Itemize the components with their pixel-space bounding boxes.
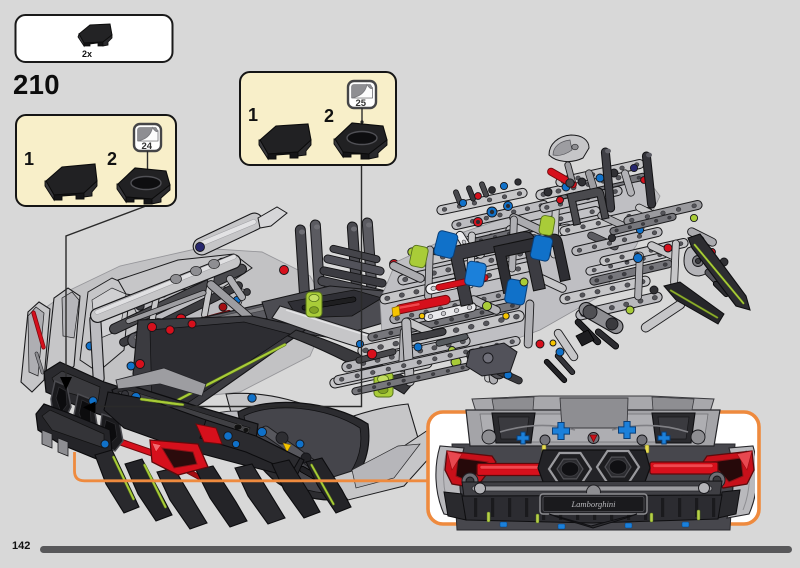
svg-text:Lamborghini: Lamborghini — [570, 499, 616, 509]
